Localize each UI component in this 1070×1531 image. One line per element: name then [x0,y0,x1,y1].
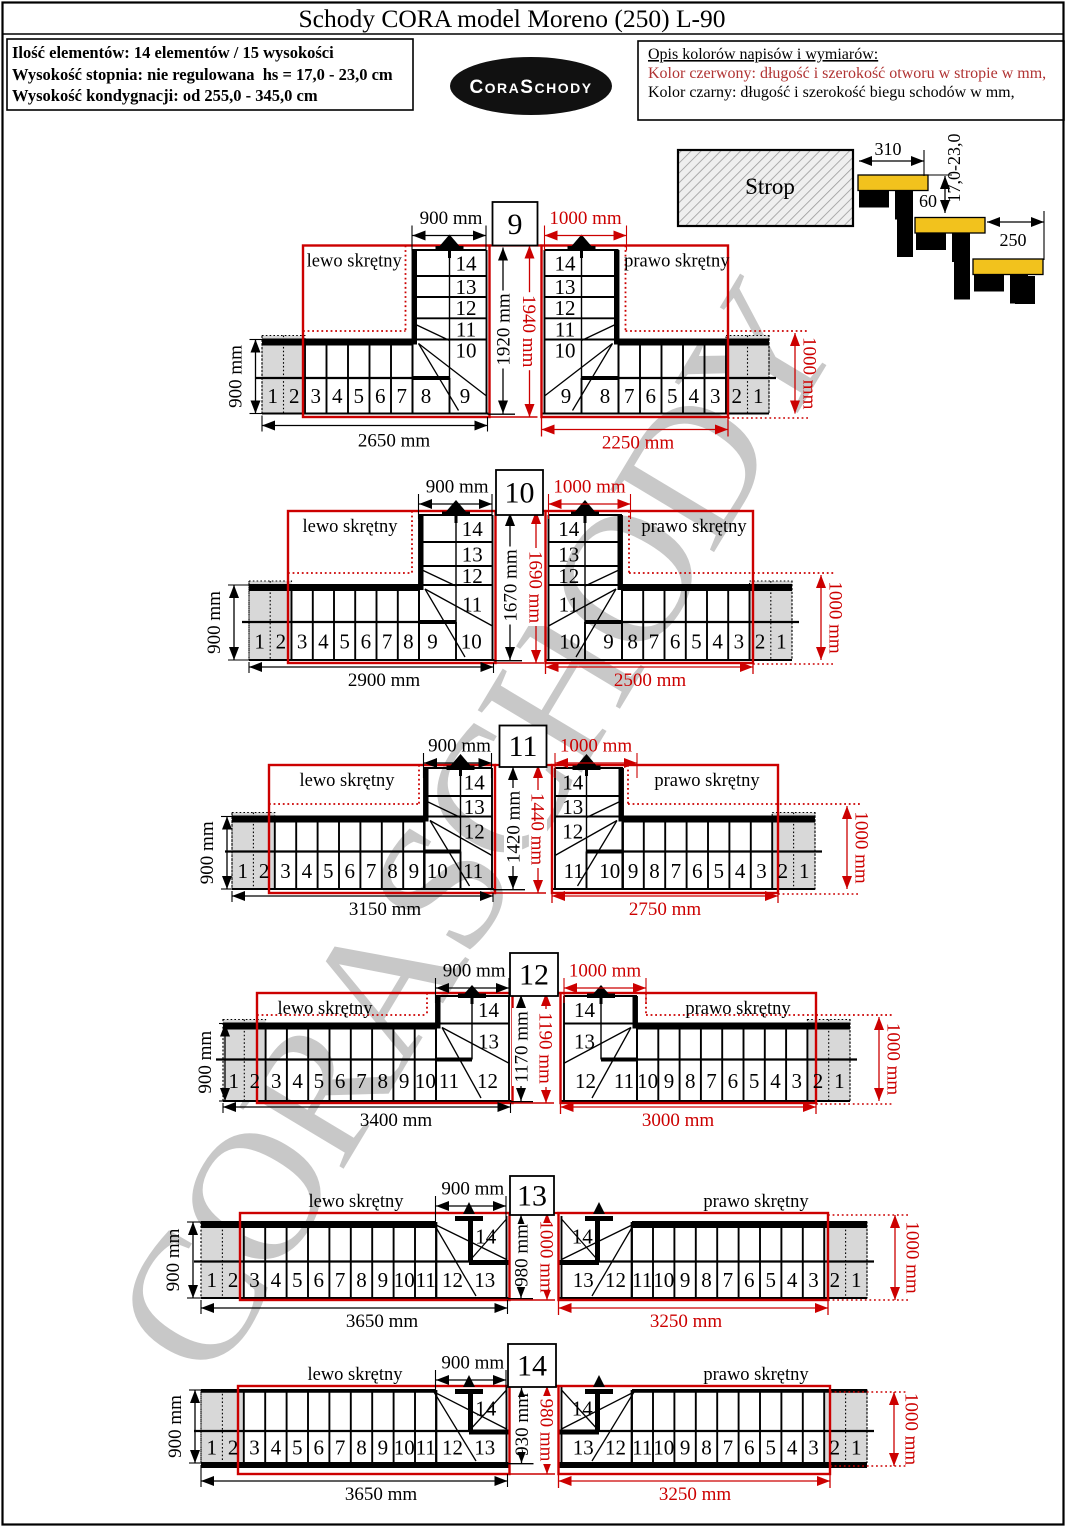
svg-text:1440 mm: 1440 mm [527,793,548,866]
svg-text:11: 11 [632,1436,652,1460]
svg-text:4: 4 [787,1436,798,1460]
svg-text:3250 mm: 3250 mm [650,1311,723,1332]
svg-text:2: 2 [276,630,287,654]
svg-text:6: 6 [670,630,681,654]
svg-text:9: 9 [427,630,438,654]
svg-text:13: 13 [474,1268,495,1292]
svg-text:13: 13 [464,795,485,819]
svg-text:4: 4 [302,859,313,883]
svg-text:1940 mm: 1940 mm [518,295,539,368]
svg-text:5: 5 [292,1268,303,1292]
svg-text:lewo skrętny: lewo skrętny [307,1365,403,1385]
svg-text:1000 mm: 1000 mm [569,961,642,982]
svg-text:7: 7 [335,1436,346,1460]
svg-text:3: 3 [249,1268,260,1292]
svg-text:3: 3 [756,859,767,883]
svg-text:prawo skrętny: prawo skrętny [703,1365,809,1385]
svg-text:5: 5 [667,384,678,408]
svg-text:900 mm: 900 mm [197,821,218,884]
svg-text:6: 6 [646,384,657,408]
svg-text:3650 mm: 3650 mm [345,1484,418,1505]
svg-text:14: 14 [478,998,500,1022]
svg-text:12: 12 [464,820,485,844]
svg-text:8: 8 [649,859,660,883]
svg-text:5: 5 [339,630,350,654]
svg-text:12: 12 [477,1069,498,1093]
svg-text:Wysokość kondygnacji: od 255,0: Wysokość kondygnacji: od 255,0 - 345,0 c… [12,86,318,105]
svg-text:prawo skrętny: prawo skrętny [685,999,791,1019]
svg-text:5: 5 [323,859,334,883]
svg-text:prawo skrętny: prawo skrętny [641,517,747,537]
svg-text:prawo skrętny: prawo skrętny [703,1192,809,1212]
svg-text:7: 7 [723,1436,734,1460]
svg-text:4: 4 [292,1069,303,1093]
svg-text:1000 mm: 1000 mm [799,337,820,410]
svg-text:250: 250 [1000,230,1027,250]
svg-text:6: 6 [313,1436,324,1460]
svg-text:5: 5 [749,1069,760,1093]
svg-text:11: 11 [559,593,579,617]
svg-text:9: 9 [628,859,639,883]
svg-text:1: 1 [851,1268,862,1292]
svg-text:4: 4 [787,1268,798,1292]
svg-text:10: 10 [394,1436,415,1460]
svg-text:Ilość elementów: 14 elementów: Ilość elementów: 14 elementów / 15 wysok… [12,43,334,62]
svg-text:3400 mm: 3400 mm [360,1110,433,1131]
svg-text:7: 7 [397,384,408,408]
svg-text:1670 mm: 1670 mm [500,549,521,622]
svg-text:1420 mm: 1420 mm [503,791,524,864]
svg-text:3000 mm: 3000 mm [642,1110,715,1131]
svg-text:prawo skrętny: prawo skrętny [654,771,760,791]
svg-text:5: 5 [691,630,702,654]
svg-text:2: 2 [228,1436,239,1460]
svg-text:14: 14 [555,252,577,276]
svg-text:1000 mm: 1000 mm [851,811,872,884]
svg-text:14: 14 [574,998,596,1022]
svg-text:14: 14 [456,252,478,276]
svg-text:12: 12 [558,564,579,588]
svg-text:980 mm: 980 mm [536,1399,557,1462]
svg-text:10: 10 [653,1436,674,1460]
svg-text:3: 3 [280,859,291,883]
svg-text:900 mm: 900 mm [441,1353,504,1374]
svg-text:2: 2 [830,1436,841,1460]
svg-text:11: 11 [462,593,482,617]
svg-text:5: 5 [314,1069,325,1093]
svg-text:10: 10 [555,339,576,363]
svg-text:14: 14 [475,1225,497,1249]
svg-text:4: 4 [318,630,329,654]
svg-text:9: 9 [664,1069,675,1093]
svg-text:8: 8 [356,1268,367,1292]
svg-text:9: 9 [680,1436,691,1460]
svg-text:12: 12 [462,564,483,588]
svg-text:7: 7 [723,1268,734,1292]
svg-text:6: 6 [692,859,703,883]
svg-text:9: 9 [378,1436,389,1460]
svg-text:4: 4 [770,1069,781,1093]
svg-text:1000 mm: 1000 mm [536,1220,557,1293]
svg-text:11: 11 [439,1069,459,1093]
svg-text:13: 13 [562,795,583,819]
svg-text:13: 13 [517,1180,547,1213]
svg-text:10: 10 [653,1268,674,1292]
svg-text:13: 13 [558,543,579,567]
svg-text:10: 10 [415,1069,436,1093]
svg-text:3: 3 [734,630,745,654]
svg-text:1: 1 [228,1069,239,1093]
svg-text:11: 11 [632,1268,652,1292]
svg-text:11: 11 [416,1436,436,1460]
svg-text:14: 14 [558,517,580,541]
svg-text:Wysokość stopnia: nie regulowa: Wysokość stopnia: nie regulowana hs = 17… [12,65,393,84]
svg-text:9: 9 [508,208,523,241]
svg-text:13: 13 [474,1436,495,1460]
svg-text:8: 8 [600,384,611,408]
svg-text:7: 7 [671,859,682,883]
svg-text:lewo skrętny: lewo skrętny [299,771,395,791]
svg-text:13: 13 [574,1030,595,1054]
svg-text:4: 4 [712,630,723,654]
svg-text:1000 mm: 1000 mm [549,208,622,229]
svg-text:1: 1 [834,1069,845,1093]
svg-text:1170 mm: 1170 mm [511,1011,532,1083]
svg-text:12: 12 [442,1436,463,1460]
svg-text:3: 3 [808,1268,819,1292]
svg-text:12: 12 [575,1069,596,1093]
svg-text:1: 1 [268,384,279,408]
svg-text:1000 mm: 1000 mm [825,581,846,654]
svg-text:2: 2 [259,859,270,883]
svg-text:17,0-23,0: 17,0-23,0 [944,134,964,203]
svg-text:1: 1 [237,859,248,883]
svg-text:1190 mm: 1190 mm [535,1012,556,1084]
svg-text:7: 7 [356,1069,367,1093]
svg-text:2: 2 [228,1268,239,1292]
svg-text:13: 13 [462,543,483,567]
svg-text:1: 1 [753,384,764,408]
svg-text:900 mm: 900 mm [428,736,491,757]
svg-text:1: 1 [776,630,787,654]
svg-text:2900 mm: 2900 mm [348,670,421,691]
svg-text:8: 8 [701,1436,712,1460]
svg-text:12: 12 [442,1268,463,1292]
svg-text:6: 6 [361,630,372,654]
svg-text:11: 11 [463,859,483,883]
svg-text:lewo skrętny: lewo skrętny [302,517,398,537]
svg-text:6: 6 [728,1069,739,1093]
svg-text:7: 7 [706,1069,717,1093]
svg-text:3: 3 [808,1436,819,1460]
svg-text:2: 2 [755,630,766,654]
svg-text:3: 3 [311,384,322,408]
svg-text:10: 10 [461,630,482,654]
svg-text:12: 12 [519,959,549,992]
svg-text:Strop: Strop [745,174,795,199]
svg-text:900 mm: 900 mm [420,208,483,229]
svg-text:900 mm: 900 mm [163,1228,184,1291]
svg-text:2: 2 [732,384,743,408]
svg-text:2650 mm: 2650 mm [358,431,431,452]
svg-text:2: 2 [813,1069,824,1093]
svg-text:6: 6 [744,1436,755,1460]
svg-text:9: 9 [399,1069,410,1093]
svg-text:11: 11 [564,859,584,883]
svg-text:980 mm: 980 mm [511,1224,532,1287]
svg-text:3: 3 [271,1069,282,1093]
svg-text:900 mm: 900 mm [443,961,506,982]
svg-text:900 mm: 900 mm [195,1031,216,1094]
svg-text:9: 9 [378,1268,389,1292]
svg-text:7: 7 [382,630,393,654]
svg-text:9: 9 [561,384,572,408]
svg-text:4: 4 [689,384,700,408]
svg-text:1000 mm: 1000 mm [901,1393,922,1466]
svg-text:6: 6 [335,1069,346,1093]
svg-text:14: 14 [464,771,486,795]
svg-text:1: 1 [254,630,265,654]
svg-text:5: 5 [765,1268,776,1292]
svg-text:2750 mm: 2750 mm [629,899,702,920]
svg-text:1: 1 [206,1436,217,1460]
svg-text:1690 mm: 1690 mm [525,551,546,624]
svg-text:14: 14 [562,771,584,795]
svg-text:930 mm: 930 mm [512,1393,533,1456]
svg-text:Kolor czerwony: długość i szer: Kolor czerwony: długość i szerokość otwo… [648,65,1046,82]
svg-text:3650 mm: 3650 mm [346,1311,419,1332]
svg-text:2: 2 [830,1268,841,1292]
svg-text:10: 10 [637,1069,658,1093]
svg-text:12: 12 [605,1436,626,1460]
svg-text:10: 10 [427,859,448,883]
svg-text:10: 10 [559,630,580,654]
svg-text:14: 14 [572,1397,594,1421]
svg-text:1: 1 [799,859,810,883]
svg-text:8: 8 [701,1268,712,1292]
svg-text:6: 6 [344,859,355,883]
svg-text:2250 mm: 2250 mm [602,433,675,454]
svg-text:5: 5 [713,859,724,883]
svg-text:3: 3 [710,384,721,408]
svg-text:7: 7 [335,1268,346,1292]
svg-text:3: 3 [792,1069,803,1093]
svg-text:1000 mm: 1000 mm [553,477,626,498]
svg-text:12: 12 [605,1268,626,1292]
svg-text:14: 14 [517,1350,547,1383]
svg-text:4: 4 [271,1268,282,1292]
svg-text:6: 6 [744,1268,755,1292]
svg-text:1: 1 [851,1436,862,1460]
svg-text:lewo skrętny: lewo skrętny [307,252,403,272]
svg-text:11: 11 [614,1069,634,1093]
svg-text:1920 mm: 1920 mm [493,293,514,366]
svg-text:lewo skrętny: lewo skrętny [277,999,373,1019]
svg-text:900 mm: 900 mm [441,1179,504,1200]
svg-text:8: 8 [403,630,414,654]
svg-text:310: 310 [875,139,902,159]
svg-text:4: 4 [735,859,746,883]
svg-text:900 mm: 900 mm [226,345,247,408]
svg-text:13: 13 [573,1268,594,1292]
svg-text:7: 7 [649,630,660,654]
svg-text:6: 6 [375,384,386,408]
svg-text:7: 7 [624,384,635,408]
svg-text:11: 11 [416,1268,436,1292]
svg-text:prawo skrętny: prawo skrętny [624,252,730,272]
svg-text:1000 mm: 1000 mm [902,1221,923,1294]
svg-text:14: 14 [475,1397,497,1421]
svg-text:11: 11 [509,730,538,763]
svg-text:900 mm: 900 mm [426,477,489,498]
svg-text:60: 60 [919,191,937,211]
svg-text:10: 10 [505,477,535,510]
svg-text:2: 2 [250,1069,261,1093]
svg-text:900 mm: 900 mm [165,1395,186,1458]
svg-text:3150 mm: 3150 mm [349,899,422,920]
svg-text:10: 10 [599,859,620,883]
svg-text:1000 mm: 1000 mm [560,736,633,757]
svg-text:7: 7 [366,859,377,883]
svg-text:5: 5 [354,384,365,408]
svg-text:CORASCHODY: CORASCHODY [469,77,592,98]
svg-text:9: 9 [460,384,471,408]
svg-text:2: 2 [778,859,789,883]
svg-text:1000 mm: 1000 mm [883,1023,904,1096]
svg-text:Opis kolorów napisów i wymiaró: Opis kolorów napisów i wymiarów: [648,46,878,63]
svg-text:4: 4 [332,384,343,408]
svg-text:1: 1 [206,1268,217,1292]
svg-text:14: 14 [572,1225,594,1249]
svg-text:13: 13 [478,1030,499,1054]
svg-text:9: 9 [409,859,420,883]
svg-text:5: 5 [765,1436,776,1460]
svg-text:2500 mm: 2500 mm [614,670,687,691]
svg-text:Schody CORA model Moreno (250): Schody CORA model Moreno (250) L-90 [298,4,725,33]
svg-text:3250 mm: 3250 mm [659,1484,732,1505]
svg-text:8: 8 [685,1069,696,1093]
svg-text:6: 6 [313,1268,324,1292]
svg-text:3: 3 [297,630,308,654]
svg-text:9: 9 [603,630,614,654]
svg-text:2: 2 [289,384,300,408]
svg-text:13: 13 [573,1436,594,1460]
svg-text:12: 12 [562,820,583,844]
svg-text:3: 3 [249,1436,260,1460]
svg-text:8: 8 [387,859,398,883]
svg-text:Kolor czarny: długość i szerok: Kolor czarny: długość i szerokość biegu … [648,84,1015,101]
svg-text:10: 10 [456,339,477,363]
svg-text:8: 8 [421,384,432,408]
svg-text:9: 9 [680,1268,691,1292]
svg-text:10: 10 [394,1268,415,1292]
svg-text:5: 5 [292,1436,303,1460]
svg-text:8: 8 [378,1069,389,1093]
svg-text:900 mm: 900 mm [204,591,225,654]
svg-text:lewo skrętny: lewo skrętny [308,1192,404,1212]
svg-text:8: 8 [356,1436,367,1460]
svg-text:8: 8 [627,630,638,654]
svg-text:4: 4 [271,1436,282,1460]
svg-text:14: 14 [462,517,484,541]
